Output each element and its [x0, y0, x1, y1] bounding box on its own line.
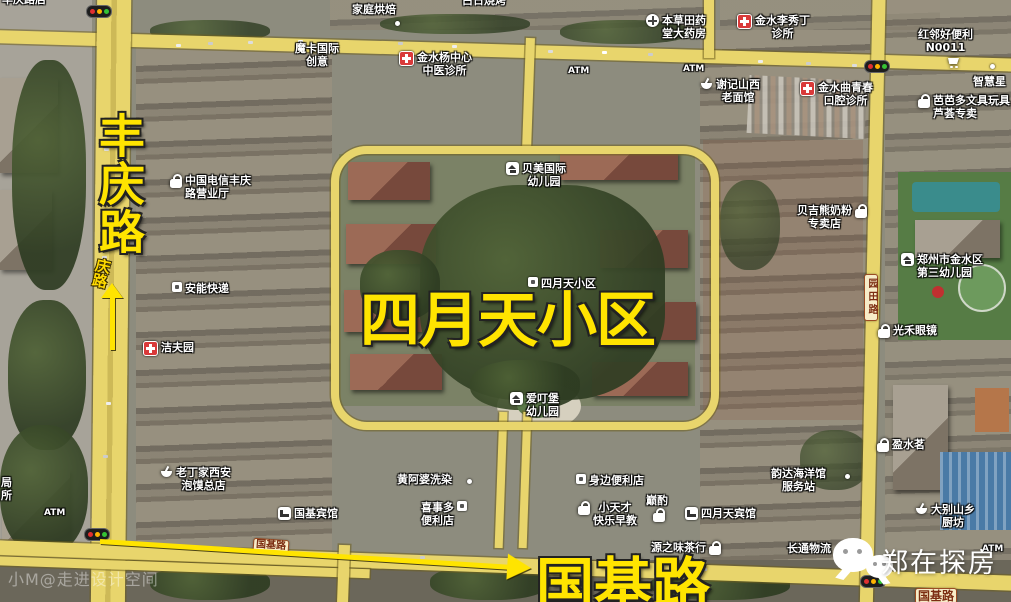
poi-xieji-noodle[interactable]: 谢记山西老面馆 — [700, 78, 760, 104]
wechat-watermark: 郑在探房 — [833, 536, 1011, 586]
poi-dianzhuo[interactable]: 巅酌 — [646, 494, 668, 507]
hospital-icon — [143, 341, 158, 356]
poi-jinshui-lixiuding[interactable]: 金水李秀丁诊所 — [737, 14, 810, 40]
poi-third-kindergarten[interactable]: 郑州市金水区第三幼儿园 — [901, 253, 983, 279]
poi-aidingbao[interactable]: 爱叮堡幼儿园 — [510, 392, 559, 418]
poi-telecom[interactable]: 中国电信丰庆路营业厅 — [170, 174, 251, 200]
poi-top-partial[interactable]: 白日烧烤 — [462, 0, 506, 7]
lock-icon — [855, 204, 867, 218]
poi-yunda-ocean[interactable]: 韵达海洋馆服务站 — [771, 467, 826, 493]
traffic-light-icon — [864, 60, 890, 73]
satellite-texture — [12, 60, 86, 290]
shopping-cart-icon — [948, 57, 960, 68]
road-label-yuantian: 园田路 — [864, 274, 878, 321]
road-stub-entry-south-1 — [495, 412, 508, 548]
poi-guoji-hotel[interactable]: 国基宾馆 — [278, 507, 338, 520]
road-label-guoji-corner: 国基路 — [915, 588, 957, 602]
poi-dot-icon — [467, 479, 472, 484]
sports-court — [975, 388, 1009, 432]
satellite-texture — [380, 14, 530, 34]
restaurant-icon — [160, 466, 173, 478]
hotel-icon — [278, 507, 291, 520]
poi-huangapo[interactable]: 黄阿婆洗染 — [397, 473, 452, 486]
satellite-texture — [932, 286, 944, 298]
poi-yingshuiming[interactable]: 盈水茗 — [877, 438, 925, 452]
poi-beijixiong-milk[interactable]: 贝吉熊奶粉专卖店 — [797, 204, 867, 230]
pool — [912, 182, 1000, 212]
poi-babaduo[interactable]: 芭芭多文具玩具芦荟专卖 — [918, 94, 1010, 120]
poi-laodingjia[interactable]: 老丁家西安泡馍总店 — [160, 466, 231, 492]
poi-dot-icon — [395, 21, 400, 26]
store-icon — [576, 474, 586, 484]
lock-icon — [170, 174, 182, 188]
designer-watermark: 小M@走进设计空间 — [8, 566, 159, 590]
hospital-icon — [737, 14, 752, 29]
poi-atm-1[interactable]: ATM — [568, 66, 589, 76]
lock-icon — [877, 438, 889, 452]
poi-dabieshan[interactable]: 大别山乡厨坊 — [915, 503, 975, 529]
store-icon — [457, 501, 467, 511]
poi-dot-icon — [990, 64, 995, 69]
annotation-siyuetian-community: 四月天小区 — [360, 272, 655, 359]
poi-jiating-baking[interactable]: 家庭烘焙 — [352, 3, 396, 16]
satellite-map[interactable]: 丰庆路店 白日烧烤 家庭烘焙 魔卡国际创意 金水杨中心中医诊所 ATM ATM … — [0, 0, 1011, 602]
poi-moka-international[interactable]: 魔卡国际创意 — [295, 42, 339, 68]
poi-atm-2[interactable]: ATM — [683, 64, 704, 74]
poi-jiefuyuan[interactable]: 洁夫园 — [143, 341, 194, 356]
poi-jinshui-dental[interactable]: 金水曲青春口腔诊所 — [800, 81, 873, 107]
annotation-fengqing-road: 丰庆路 — [86, 112, 152, 256]
school-icon — [506, 162, 519, 175]
poi-honglin-store[interactable]: 红邻好便利N0011 — [918, 28, 973, 54]
poi-atm-3[interactable]: ATM — [44, 508, 65, 518]
traffic-light-icon — [86, 5, 112, 18]
store-icon — [172, 282, 182, 292]
poi-bencao-pharmacy[interactable]: 本草田药堂大药房 — [646, 14, 706, 40]
hotel-icon — [685, 507, 698, 520]
hospital-icon — [800, 81, 815, 96]
poi-dot-icon — [845, 474, 850, 479]
lock-icon — [578, 501, 590, 515]
poi-topleft-partial[interactable]: 丰庆路店 — [2, 0, 46, 6]
hospital-icon — [399, 51, 414, 66]
school-icon — [510, 392, 523, 405]
poi-siyuetian-hotel[interactable]: 四月天宾馆 — [685, 507, 756, 520]
satellite-texture — [0, 425, 88, 555]
pharmacy-icon — [646, 14, 659, 27]
poi-beimei-kindergarten[interactable]: 贝美国际幼儿园 — [506, 162, 566, 188]
annotation-guoji-road: 国基路 — [536, 538, 710, 602]
lock-icon — [709, 541, 721, 555]
poi-shenbian-store[interactable]: 身边便利店 — [576, 474, 644, 487]
restaurant-icon — [915, 503, 928, 515]
poi-guanghe-glasses[interactable]: 光禾眼镜 — [878, 324, 937, 338]
lock-icon — [918, 94, 930, 108]
school-icon — [901, 253, 914, 266]
poi-xishiduo[interactable]: 喜事多便利店 — [421, 501, 467, 527]
restaurant-icon — [700, 78, 713, 90]
route-arrow-up — [100, 283, 124, 351]
poi-changtong-logistics[interactable]: 长通物流 — [787, 542, 831, 555]
wechat-account-name: 郑在探房 — [881, 541, 997, 580]
poi-left-partial[interactable]: 局所 — [1, 476, 12, 502]
poi-jinshuiyang-clinic[interactable]: 金水杨中心中医诊所 — [399, 51, 472, 77]
lock-icon — [653, 508, 665, 522]
road-stub-entry-south-2 — [519, 412, 532, 548]
satellite-texture — [720, 180, 780, 270]
poi-anneng-express[interactable]: 安能快递 — [172, 282, 229, 295]
poi-zhihuixing[interactable]: 智慧星 — [973, 75, 1006, 88]
lock-icon — [878, 324, 890, 338]
poi-xiaotiancai[interactable]: 小天才快乐早教 — [578, 501, 637, 527]
satellite-texture — [703, 140, 863, 420]
